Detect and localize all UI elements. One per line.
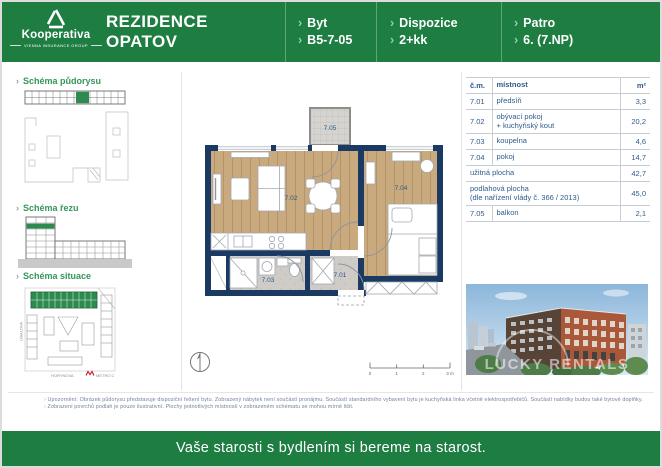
layout-value: 2+kk xyxy=(390,32,458,49)
street-bottom-label: HORYNOVA xyxy=(51,373,74,378)
table-row: 7.01 předsíň 3,3 xyxy=(466,94,650,110)
field-layout: Dispozice 2+kk xyxy=(390,15,458,49)
header-divider xyxy=(501,2,502,62)
balcony-label: 7.05 xyxy=(324,125,337,132)
content-bottom-rule xyxy=(8,392,654,393)
table-summary-row: podlahová plocha (dle nařízení vlády č. … xyxy=(466,182,650,206)
unit-label: Byt xyxy=(298,15,352,32)
field-unit: Byt B5-7-05 xyxy=(298,15,352,49)
building-photo: LUCKY RENTALS xyxy=(466,284,648,375)
highlighted-unit xyxy=(76,92,89,103)
field-floor: Patro 6. (7.NP) xyxy=(514,15,573,49)
floor-label: Patro xyxy=(514,15,573,32)
scale-tick-2: 2 xyxy=(422,371,425,376)
header-area: m² xyxy=(620,78,650,94)
project-title: REZIDENCE OPATOV xyxy=(106,12,208,52)
summary-room: podlahová plocha (dle nařízení vlády č. … xyxy=(466,182,620,206)
row-room: pokoj xyxy=(492,150,620,166)
row-room: předsíň xyxy=(492,94,620,110)
row-area: 14,7 xyxy=(620,150,650,166)
title-line1: REZIDENCE xyxy=(106,12,208,32)
note-line: Zobrazení povrchů podlah je pouze ilustr… xyxy=(44,404,644,411)
table-row: 7.02 obývací pokoj + kuchyňský kout 20,2 xyxy=(466,110,650,134)
railing xyxy=(366,282,437,294)
layout-label: Dispozice xyxy=(390,15,458,32)
floor-value: 6. (7.NP) xyxy=(514,32,573,49)
summary-room: užitná plocha xyxy=(466,166,620,182)
watermark-text: LUCKY RENTALS xyxy=(485,356,630,373)
kooperativa-logo: Kooperativa VIENNA INSURANCE GROUP xyxy=(10,7,102,48)
row-room: balkon xyxy=(492,206,620,222)
logo-brand: Kooperativa xyxy=(10,29,102,41)
floorplan: 7.05 7.02 7.04 7.03 7.01 0 1 2 3 m xyxy=(188,86,458,386)
highlighted-floor xyxy=(27,224,55,229)
scale-tick-0: 0 xyxy=(369,371,372,376)
row-area: 3,3 xyxy=(620,94,650,110)
unit-value: B5-7-05 xyxy=(298,32,352,49)
living-label: 7.02 xyxy=(285,195,298,202)
header-divider xyxy=(285,2,286,62)
table-row: 7.04 pokoj 14,7 xyxy=(466,150,650,166)
windows xyxy=(218,145,433,151)
row-room: obývací pokoj + kuchyňský kout xyxy=(492,110,620,134)
divider-plan-table xyxy=(461,72,462,390)
row-num: 7.03 xyxy=(466,134,492,150)
hall-label: 7.01 xyxy=(334,272,347,279)
row-num: 7.05 xyxy=(466,206,492,222)
row-area: 20,2 xyxy=(620,110,650,134)
schema-floorplan-label: Schéma půdorysu xyxy=(16,76,101,86)
divider-sidebar-plan xyxy=(181,72,182,390)
schema-site-label: Schéma situace xyxy=(16,271,91,281)
header-num: č.m. xyxy=(466,78,492,94)
bedroom-label: 7.04 xyxy=(395,185,408,192)
metro-icon xyxy=(86,372,94,376)
logo-group: VIENNA INSURANCE GROUP xyxy=(10,43,102,48)
row-area: 4,6 xyxy=(620,134,650,150)
schema-section-drawing xyxy=(16,215,134,269)
north-compass-icon xyxy=(191,353,210,372)
row-num: 7.01 xyxy=(466,94,492,110)
table-summary-row: užitná plocha 42,7 xyxy=(466,166,650,182)
header: Kooperativa VIENNA INSURANCE GROUP REZID… xyxy=(2,2,660,62)
row-num: 7.04 xyxy=(466,150,492,166)
summary-area: 45,0 xyxy=(620,182,650,206)
logo-group-label: VIENNA INSURANCE GROUP xyxy=(24,43,88,48)
header-room: místnost xyxy=(492,78,620,94)
bathroom-label: 7.03 xyxy=(262,277,275,284)
slogan-bar: Vaše starosti s bydlením si bereme na st… xyxy=(2,431,660,466)
kooperativa-triangle-icon xyxy=(43,7,69,29)
street-left-label: LÍBALOVA xyxy=(19,322,24,341)
row-area: 2,1 xyxy=(620,206,650,222)
table-header-row: č.m. místnost m² xyxy=(466,78,650,94)
row-room: koupelna xyxy=(492,134,620,150)
apartment-datasheet: Kooperativa VIENNA INSURANCE GROUP REZID… xyxy=(0,0,662,468)
room-area-table: č.m. místnost m² 7.01 předsíň 3,3 7.02 o… xyxy=(466,77,650,222)
header-divider xyxy=(376,2,377,62)
schema-site-drawing: LÍBALOVA HORYNOVA METRO C xyxy=(18,283,122,380)
row-num: 7.02 xyxy=(466,110,492,134)
entry-threshold xyxy=(338,296,364,305)
summary-area: 42,7 xyxy=(620,166,650,182)
table-row: 7.05 balkon 2,1 xyxy=(466,206,650,222)
metro-label: METRO C xyxy=(96,373,115,378)
scale-tick-3: 3 m xyxy=(446,371,454,376)
scale-tick-1: 1 xyxy=(395,371,398,376)
schema-floorplan-drawing xyxy=(16,88,134,190)
table-row: 7.03 koupelna 4,6 xyxy=(466,134,650,150)
title-line2: OPATOV xyxy=(106,32,208,52)
disclaimer-notes: Upozornění: Obrázek půdorysu představuje… xyxy=(44,397,644,412)
schema-section-label: Schéma řezu xyxy=(16,203,79,213)
scale-bar xyxy=(370,363,450,369)
slogan-text: Vaše starosti s bydlením si bereme na st… xyxy=(176,440,486,456)
